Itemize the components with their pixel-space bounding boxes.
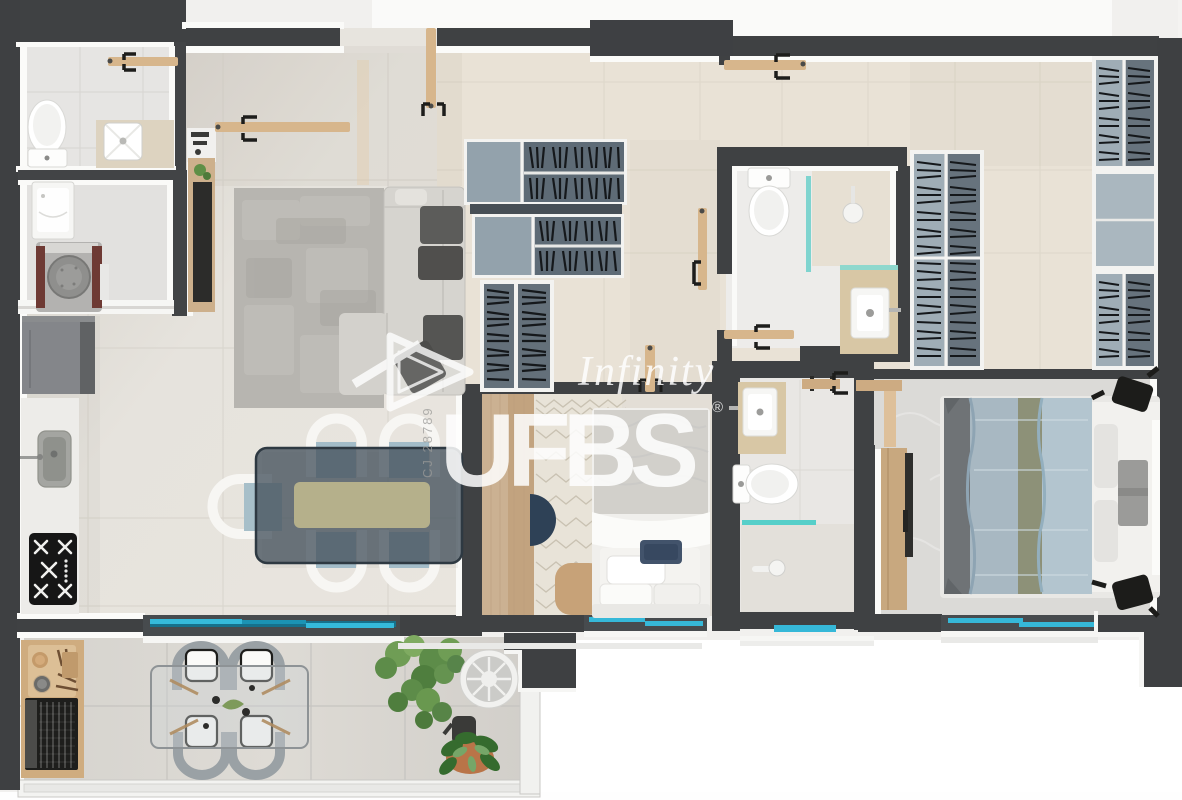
svg-text:UFBS: UFBS bbox=[440, 393, 696, 509]
svg-text:CJ 28789: CJ 28789 bbox=[420, 406, 435, 478]
svg-text:®: ® bbox=[712, 399, 723, 416]
svg-text:Infinity: Infinity bbox=[577, 349, 715, 395]
